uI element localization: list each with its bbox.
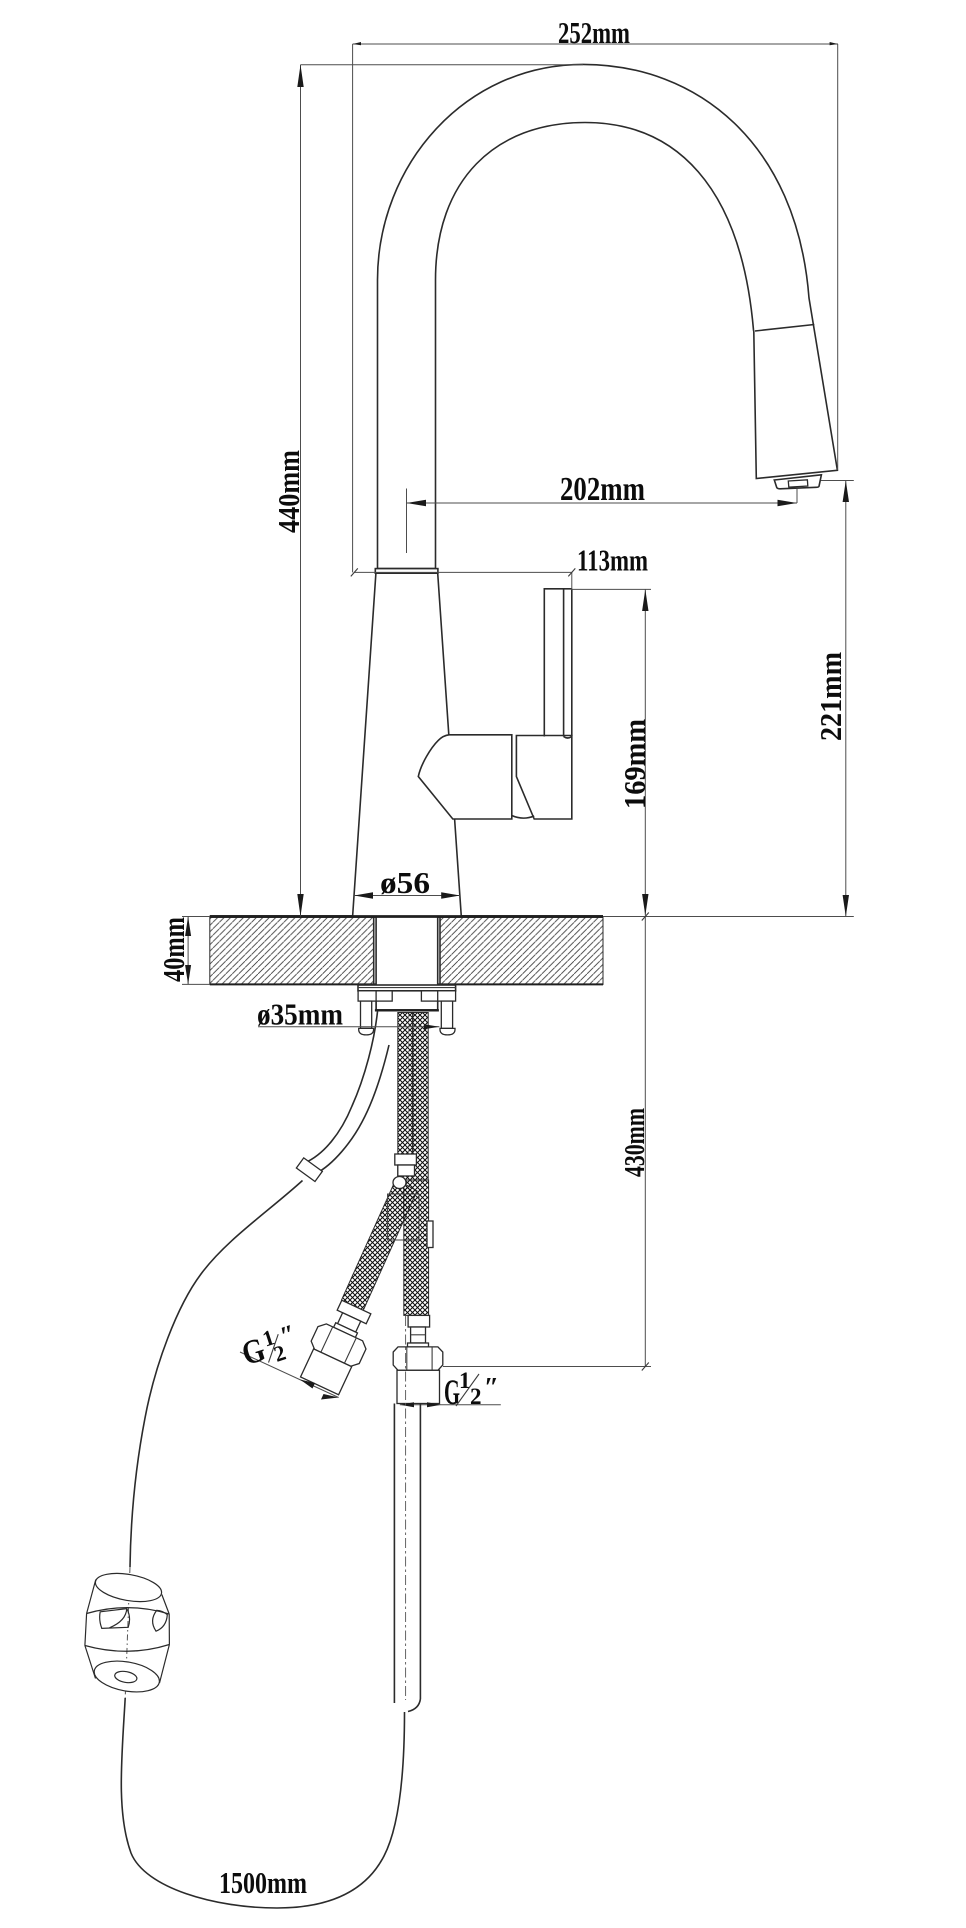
svg-text:40mm: 40mm [156, 917, 191, 982]
svg-text:ø56: ø56 [380, 865, 430, 900]
svg-text:G: G [444, 1372, 460, 1412]
svg-text:1500mm: 1500mm [219, 1865, 307, 1900]
svg-text:440mm: 440mm [271, 450, 306, 533]
svg-text:430mm: 430mm [619, 1108, 651, 1177]
svg-text:1: 1 [459, 1368, 471, 1393]
svg-text:221mm: 221mm [813, 652, 848, 741]
svg-text:ø35mm: ø35mm [257, 997, 343, 1032]
svg-text:252mm: 252mm [558, 15, 630, 50]
svg-text:202mm: 202mm [560, 471, 645, 508]
svg-text:169mm: 169mm [617, 719, 652, 809]
svg-text:″: ″ [484, 1372, 499, 1402]
svg-text:113mm: 113mm [577, 543, 648, 578]
svg-text:2: 2 [470, 1384, 482, 1409]
